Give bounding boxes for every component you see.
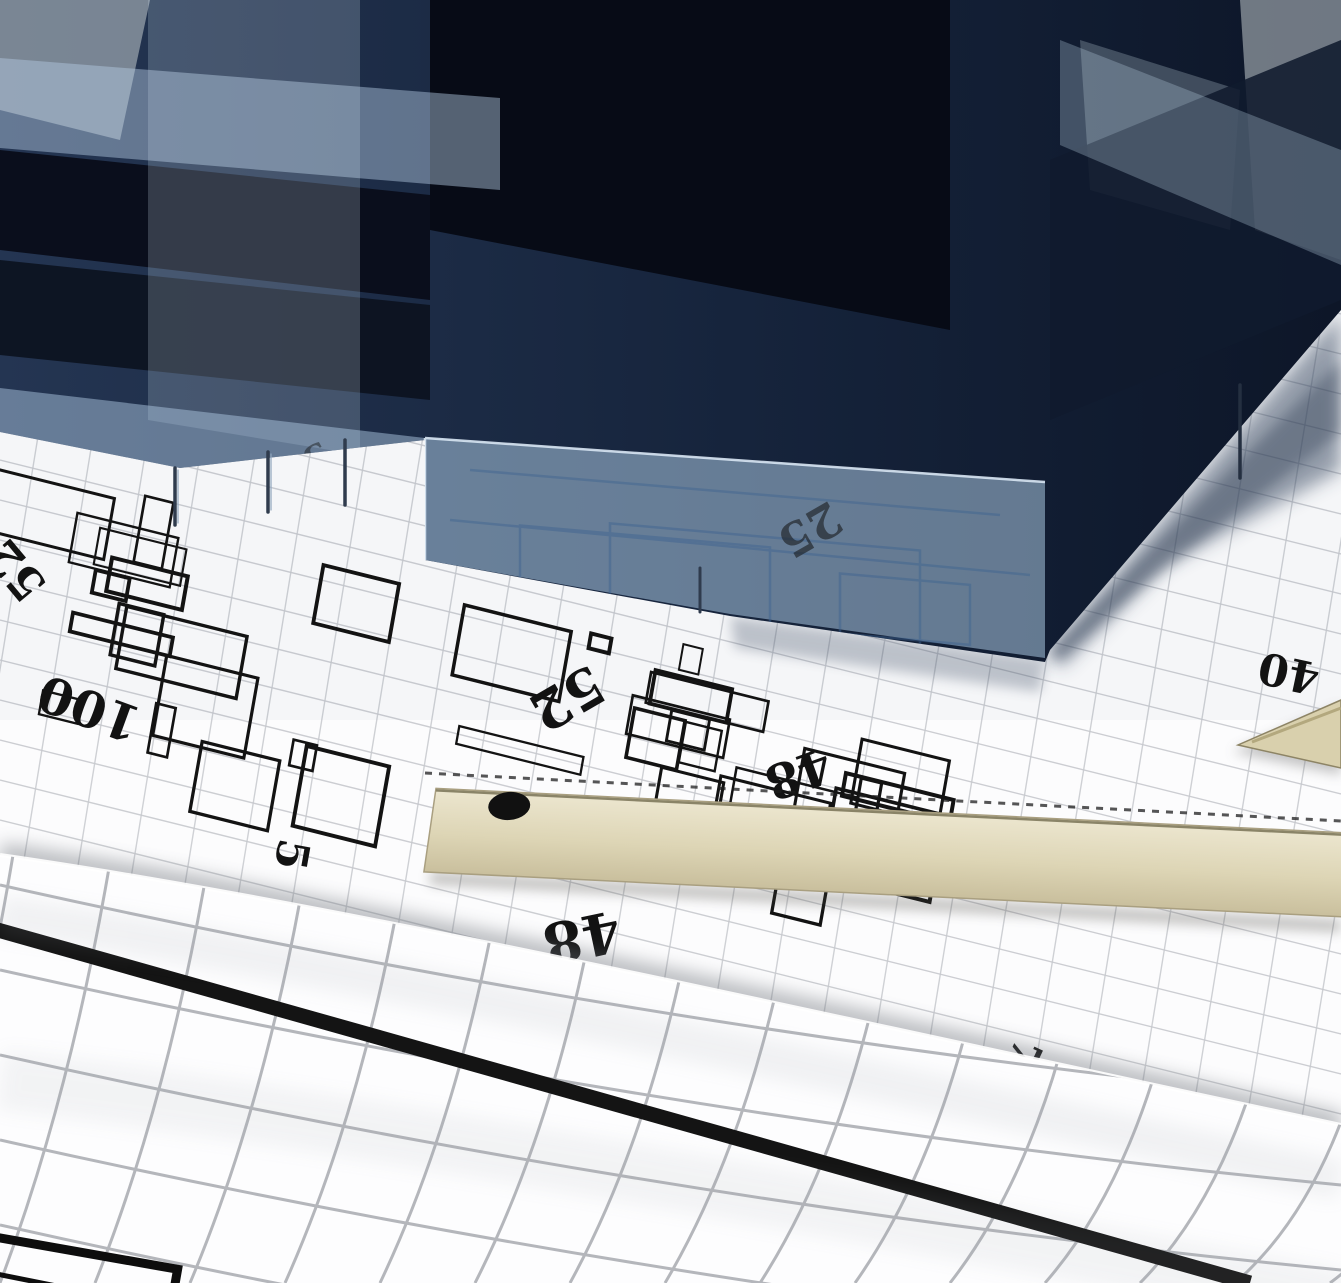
scene-canvas: 52 100 52 48 48 5 40 40 7	[0, 0, 1341, 1283]
blueprint-scene: 52 100 52 48 48 5 40 40 7	[0, 0, 1341, 1283]
